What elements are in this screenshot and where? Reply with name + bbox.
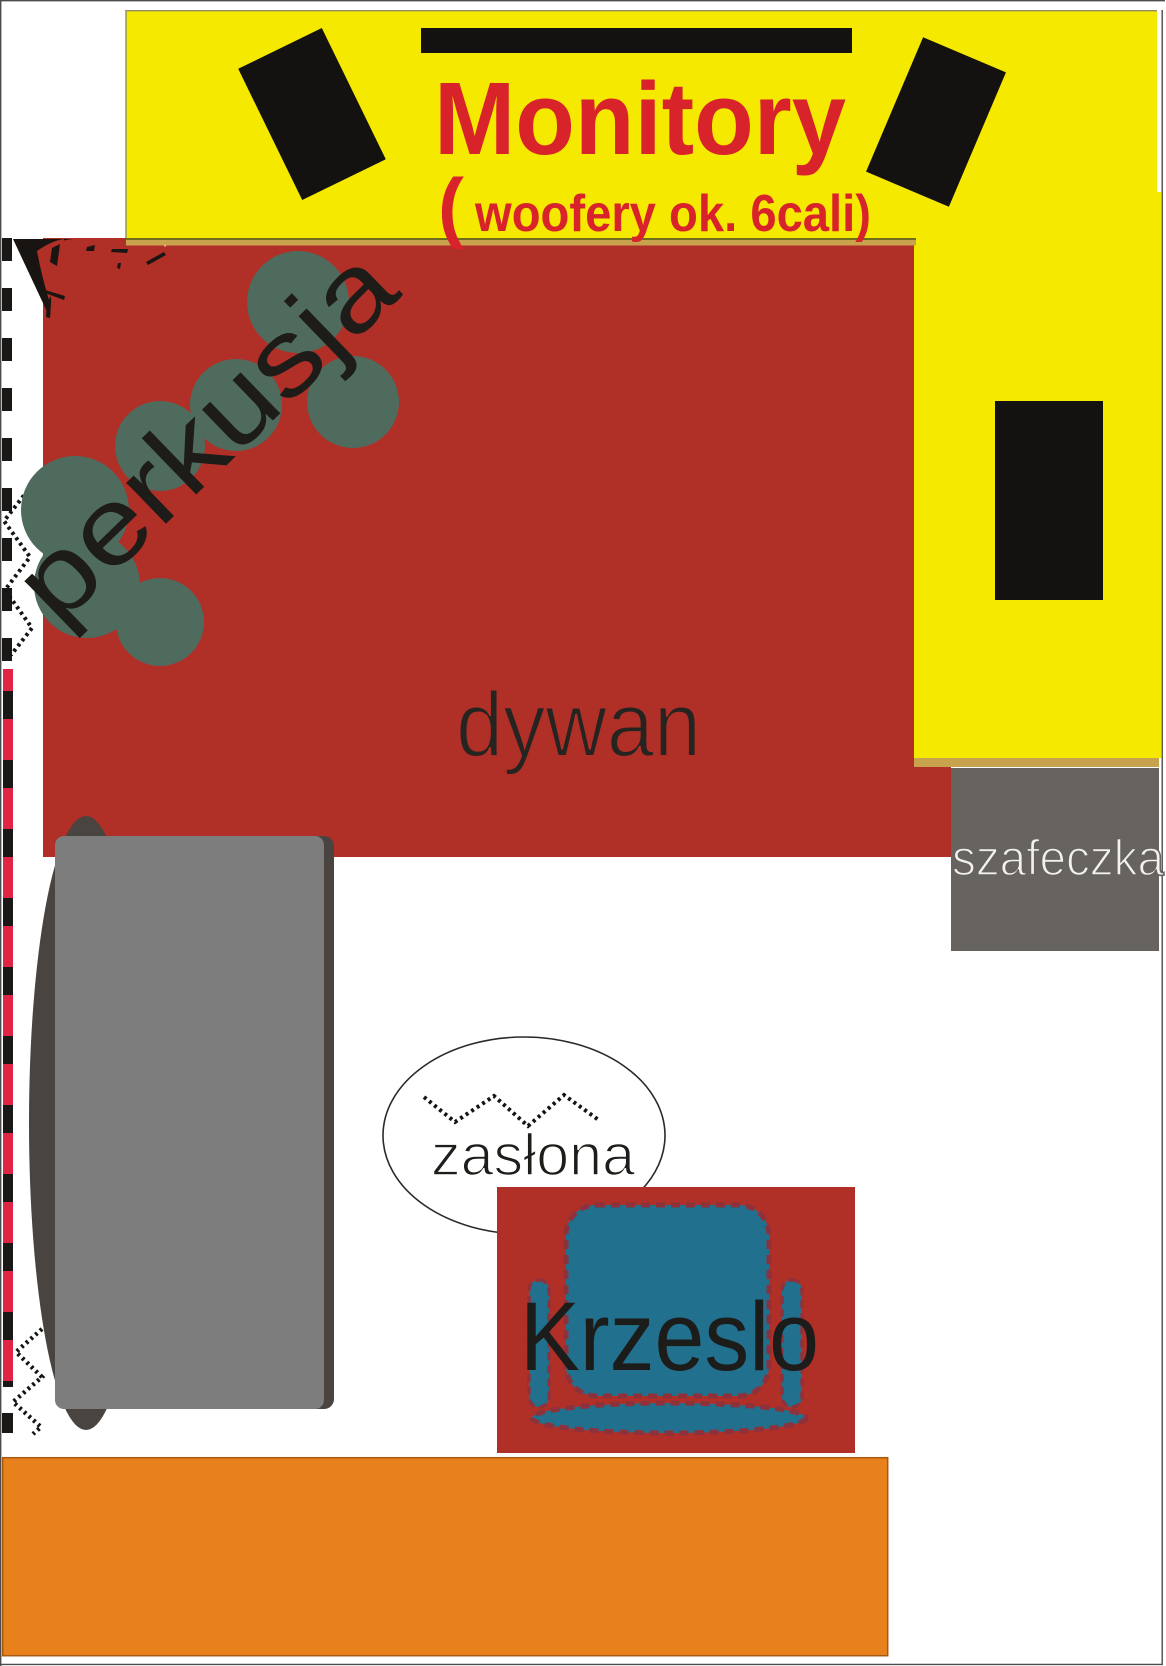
svg-text:Krzeslo: Krzeslo xyxy=(520,1282,819,1391)
svg-text:(: ( xyxy=(438,162,464,250)
svg-text:Monitory: Monitory xyxy=(434,61,846,176)
svg-text:szafeczka: szafeczka xyxy=(952,830,1164,886)
svg-text:dywan: dywan xyxy=(456,674,701,776)
svg-text:zasłona: zasłona xyxy=(431,1123,636,1188)
svg-text:woofery ok. 6cali): woofery ok. 6cali) xyxy=(474,185,871,243)
